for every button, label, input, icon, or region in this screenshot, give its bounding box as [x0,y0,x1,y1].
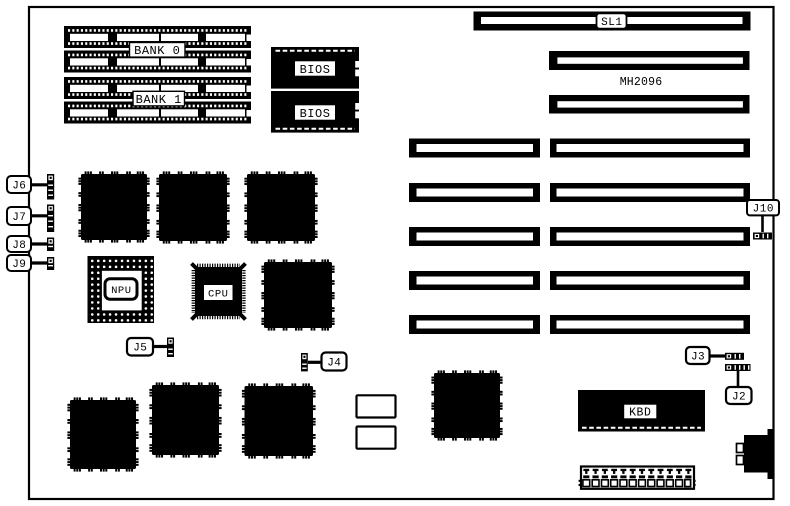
svg-text:CPU: CPU [208,288,228,300]
svg-text:BANK 0: BANK 0 [134,44,180,58]
svg-text:BIOS: BIOS [300,63,331,77]
svg-text:J9: J9 [12,259,26,271]
svg-text:J3: J3 [691,351,705,363]
svg-text:J7: J7 [12,212,26,224]
svg-text:J5: J5 [133,343,147,355]
svg-text:SL1: SL1 [601,17,622,29]
svg-text:J6: J6 [12,180,26,192]
svg-text:KBD: KBD [629,407,651,420]
svg-text:J10: J10 [753,204,774,216]
svg-text:J2: J2 [732,391,746,403]
svg-text:BIOS: BIOS [300,107,331,121]
svg-text:MH2096: MH2096 [620,76,663,89]
svg-text:NPU: NPU [111,285,131,297]
svg-text:J8: J8 [12,240,26,252]
svg-text:BANK 1: BANK 1 [136,93,182,107]
svg-text:J4: J4 [327,357,341,369]
